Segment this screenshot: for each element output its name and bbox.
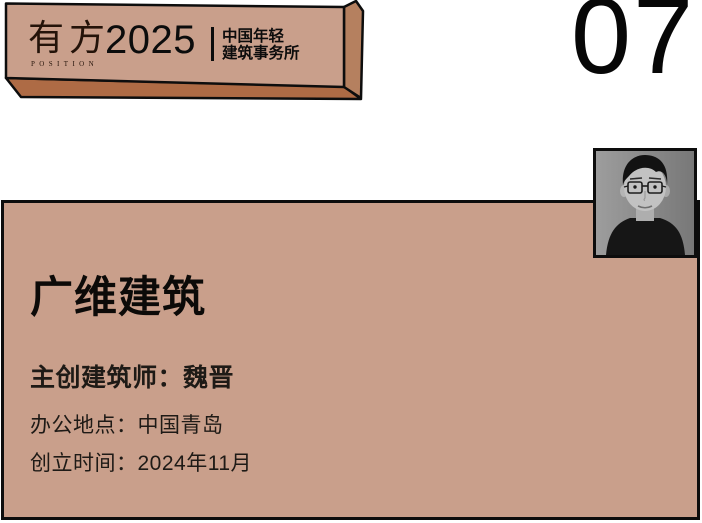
youfang-logo-characters: 有方: [28, 18, 106, 58]
banner-year: 2025: [105, 18, 196, 62]
banner-divider: [211, 27, 214, 61]
portrait-illustration: [596, 151, 694, 255]
founded-line: 创立时间：2024年11月: [30, 451, 252, 477]
banner-subtitle: 中国年轻 建筑事务所: [222, 28, 300, 62]
banner-content: 有方 POSITION 2025 中国年轻 建筑事务所: [6, 4, 344, 86]
youfang-logo-caption: POSITION: [31, 60, 106, 68]
page: { "banner": { "logo": "有方", "logo_captio…: [0, 0, 702, 523]
youfang-logo: 有方 POSITION: [28, 18, 106, 68]
banner-subtitle-line2: 建筑事务所: [222, 45, 300, 62]
event-banner: 有方 POSITION 2025 中国年轻 建筑事务所: [0, 0, 372, 106]
page-number: 07: [571, 0, 695, 90]
banner-subtitle-line1: 中国年轻: [222, 28, 300, 45]
architect-portrait-photo: [593, 148, 697, 258]
architect-line: 主创建筑师：魏晋: [30, 363, 234, 393]
location-line: 办公地点：中国青岛: [30, 413, 224, 439]
studio-name: 广维建筑: [30, 273, 206, 323]
